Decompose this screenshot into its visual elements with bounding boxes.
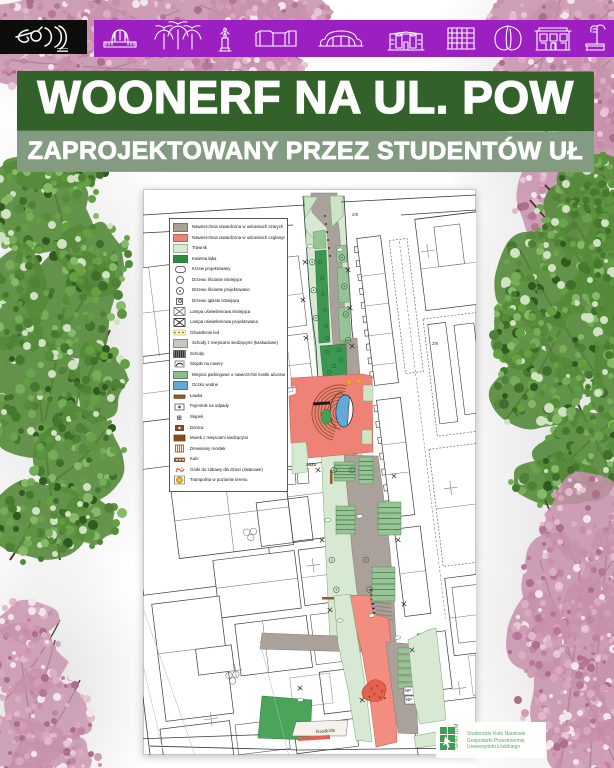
svg-text:NP: NP bbox=[405, 688, 411, 693]
svg-text:2/6: 2/6 bbox=[432, 341, 439, 346]
svg-text:2/6: 2/6 bbox=[352, 212, 359, 217]
svg-text:NP: NP bbox=[406, 697, 412, 702]
svg-text:SPATIUM: SPATIUM bbox=[454, 723, 460, 749]
svg-text:3333: 3333 bbox=[306, 462, 317, 467]
